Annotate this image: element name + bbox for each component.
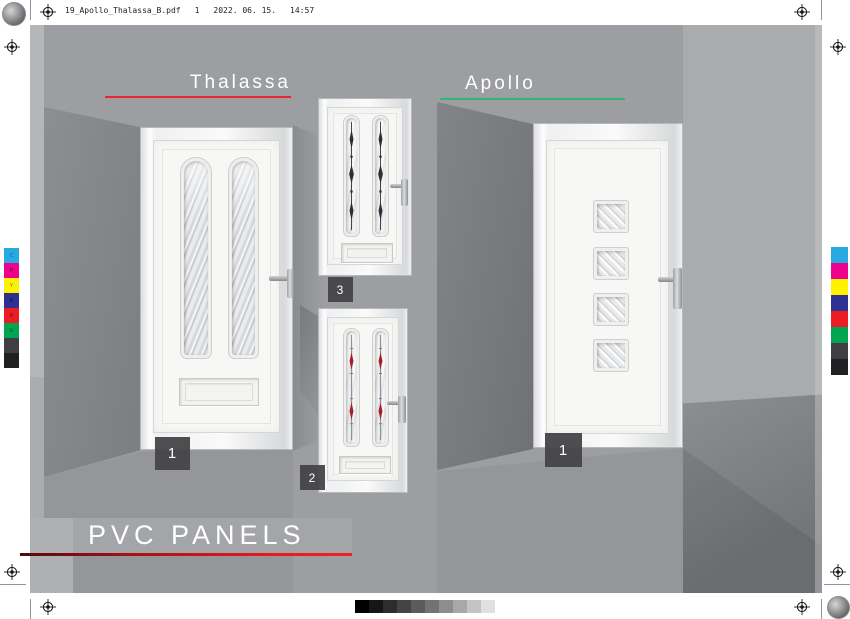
file-date: 2022. 06. 15.: [213, 6, 276, 15]
red-accent-ornament-icon: [346, 331, 357, 444]
color-calibration-bar-right: CMYBRG: [831, 247, 848, 375]
registration-mark-icon: [40, 599, 56, 615]
door-handle-plate: [673, 268, 682, 309]
color-patch: G: [4, 323, 19, 338]
page-number: 1: [195, 6, 200, 15]
wrought-iron-ornament-icon: [375, 118, 386, 234]
color-patch: [4, 338, 19, 353]
wrought-iron-ornament-icon: [346, 118, 357, 234]
thalassa-door-number-badge: 2: [300, 465, 325, 490]
color-patch: B: [4, 293, 19, 308]
door-glass-strip: [344, 329, 359, 446]
door-groove: [554, 148, 661, 426]
door-lower-panel: [339, 456, 391, 474]
right-wall-edge: [815, 25, 822, 593]
apollo-title: Apollo: [465, 73, 536, 95]
registration-mark-icon: [4, 564, 20, 580]
door-handle-plate: [287, 269, 294, 298]
color-patch: [831, 343, 848, 359]
file-time: 14:57: [290, 6, 314, 15]
page-title-underline: [20, 553, 352, 556]
grayscale-step: [411, 600, 425, 613]
crop-mark-line: [30, 0, 31, 20]
grayscale-step: [369, 600, 383, 613]
thalassa-title: Thalassa: [30, 72, 291, 94]
color-patch: Y: [4, 278, 19, 293]
apollo-door: [533, 123, 683, 448]
door-lower-panel: [179, 378, 259, 406]
apollo-title-underline: [440, 98, 625, 100]
thalassa-door-number-badge: 1: [155, 437, 190, 470]
door-lower-panel: [341, 243, 393, 263]
door-square-window: [594, 248, 628, 279]
door-handle-icon: [269, 276, 288, 281]
crop-mark-line: [824, 584, 850, 585]
color-patch: Y: [831, 279, 848, 295]
thalassa-door-variant-2: [318, 308, 408, 493]
color-patch: M: [831, 263, 848, 279]
door-handle-plate: [401, 179, 408, 206]
color-patch: C: [831, 247, 848, 263]
grayscale-step: [453, 600, 467, 613]
color-patch: R: [4, 308, 19, 323]
registration-mark-icon: [830, 39, 846, 55]
grayscale-step: [439, 600, 453, 613]
color-patch: M: [4, 263, 19, 278]
punch-hole-icon: [827, 596, 850, 619]
door-square-window: [594, 201, 628, 232]
door-glass-strip: [373, 116, 388, 236]
door-glass-strip: [373, 329, 388, 446]
grayscale-step: [397, 600, 411, 613]
color-patch: [831, 359, 848, 375]
grayscale-step: [355, 600, 369, 613]
grayscale-step: [467, 600, 481, 613]
punch-hole-icon: [2, 2, 26, 26]
crop-mark-line: [821, 0, 822, 20]
color-patch: [4, 353, 19, 368]
apollo-floor-shade: [437, 448, 683, 593]
crop-mark-line: [821, 599, 822, 619]
door-glass-panel: [181, 158, 211, 358]
grayscale-step: [425, 600, 439, 613]
registration-mark-icon: [794, 599, 810, 615]
thalassa-door-large: [140, 127, 293, 450]
color-patch: C: [4, 248, 19, 263]
apollo-door-number-badge: 1: [545, 433, 582, 467]
crop-mark-line: [0, 584, 26, 585]
color-patch: R: [831, 311, 848, 327]
registration-mark-icon: [40, 4, 56, 20]
registration-mark-icon: [830, 564, 846, 580]
door-handle-plate: [398, 396, 406, 423]
color-patch: B: [831, 295, 848, 311]
apollo-perspective-wall: [437, 102, 533, 470]
page-title: PVC PANELS: [88, 520, 306, 551]
door-glass-panel: [229, 158, 258, 358]
red-accent-ornament-icon: [375, 331, 386, 444]
thalassa-perspective-wall: [44, 107, 141, 477]
grayscale-calibration-bar: [355, 600, 495, 613]
grayscale-step: [383, 600, 397, 613]
color-patch: G: [831, 327, 848, 343]
catalog-page: Thalassa 1: [30, 25, 822, 593]
registration-mark-icon: [4, 39, 20, 55]
file-info-line: 19_Apollo_Thalassa_B.pdf12022. 06. 15.14…: [65, 6, 328, 15]
color-calibration-bar-left: CMYBRG: [4, 248, 19, 368]
door-square-window: [594, 294, 628, 325]
door-square-window: [594, 340, 628, 371]
prepress-proof-sheet: 19_Apollo_Thalassa_B.pdf12022. 06. 15.14…: [0, 0, 850, 619]
apollo-back-wall: [683, 25, 822, 403]
thalassa-door-number-badge: 3: [328, 277, 353, 302]
grayscale-step: [481, 600, 495, 613]
door-glass-strip: [344, 116, 359, 236]
thalassa-door-variant-3: [318, 98, 412, 276]
file-name: 19_Apollo_Thalassa_B.pdf: [65, 6, 181, 15]
thalassa-title-underline: [105, 96, 291, 98]
crop-mark-line: [30, 599, 31, 619]
registration-mark-icon: [794, 4, 810, 20]
